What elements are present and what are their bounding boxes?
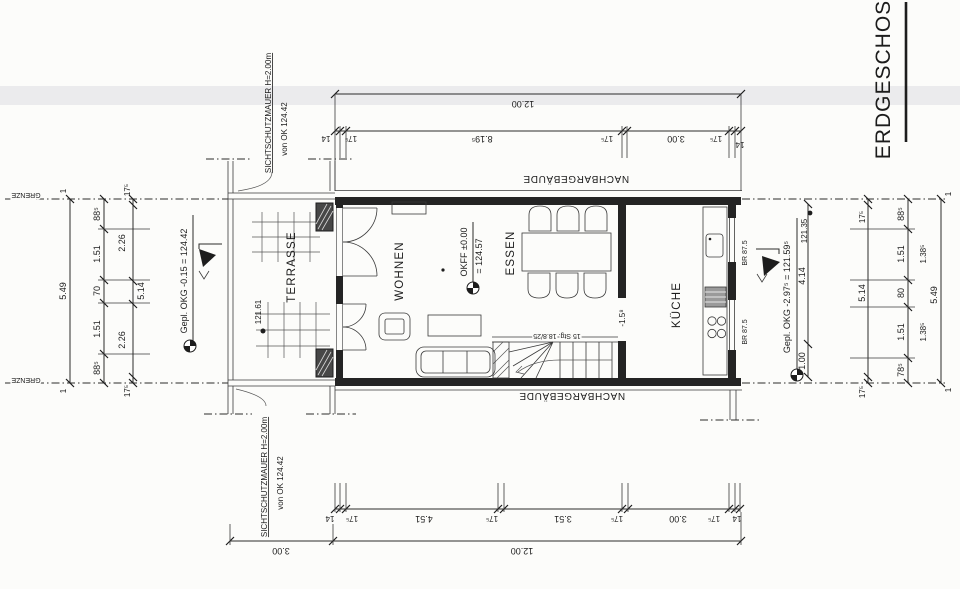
window-sill-label-b: BR 87.5 [742,319,749,344]
dim-label: 5.14 [857,284,867,302]
floorplan-drawing: ERDGESCHOSS [0,0,960,589]
dim-label: 1.00 [797,352,807,370]
dim-label: 17⁵ [345,134,357,143]
dim-label: 14 [732,514,741,523]
dim-label: 17⁵ [123,385,132,397]
dim-label: 3.00 [669,514,687,524]
dim-label: 2.26 [117,234,127,252]
spot-elevation-right: 121.35 [800,218,809,243]
terrace-level-label: Gepl. OKG -0.15 = 124.42 [179,229,189,334]
dim-label: 8.19⁵ [471,134,493,144]
dim-bottom-terrace: 3.00 [272,546,290,556]
dim-label: 17⁵ [346,514,358,523]
terrace-level-annotation: Gepl. OKG -0.15 = 124.42 [179,215,222,352]
privacy-wall-top-name: SICHTSCHUTZMAUER H=2.00m [264,53,273,174]
floor-level-marker: OKFF ±0.00 = 124.57 [441,222,484,294]
terrace-column-top [316,203,333,231]
dim-label: 17⁵ [486,514,498,523]
dim-label: 88⁵ [92,207,102,221]
dim-label: 14 [735,140,744,149]
room-label-dining: ESSEN [505,231,517,276]
dim-label: 1 [59,188,68,193]
dim-label: 88⁵ [92,361,102,375]
room-label-kitchen: KÜCHE [671,282,683,328]
dimension-left: 5.49 1 1 88⁵ 1.51 70 1.51 88⁵ 17⁵ 2.26 5… [58,184,150,397]
dim-label: 70 [92,286,102,296]
privacy-wall-label-top: SICHTSCHUTZMAUER H=2.00m von OK 124.42 [238,53,289,191]
dim-label: 2.26 [117,331,127,349]
spot-elevation-terrace: 121.61 [254,299,263,324]
dim-label: 1 [944,191,953,196]
dim-label: 17⁵ [611,514,623,523]
dimension-bottom: 14 17⁵ 4.51 17⁵ 3.51 17⁵ 3.00 17⁵ 14 3.0… [226,483,745,556]
privacy-wall-bottom-name: SICHTSCHUTZMAUER H=2.00m [260,417,269,538]
window-sill-label-a: BR 87.5 [742,240,749,265]
dim-label: 80 [896,288,906,298]
staircase: 15 Stg. 18.8/25 -1.5⁸ [509,309,627,378]
spot-dot-right [808,211,813,216]
dim-label: 1 [59,388,68,393]
dim-label: 3.51 [554,514,572,524]
dim-top-total: 12.00 [512,99,535,109]
dim-label: 17⁵ [858,386,867,398]
boundary-label-top: GRENZE [11,191,41,198]
dim-bottom-total: 12.00 [511,546,534,556]
floor-level-label: OKFF ±0.00 [459,228,469,277]
dim-label: 1 [944,387,953,392]
stair-landing-level: -1.5⁸ [618,309,627,326]
coffee-table [428,315,481,336]
dim-label: 4.14 [797,267,807,285]
dim-label: 1.38⁵ [919,323,928,342]
dim-label: 17⁵ [858,211,867,223]
terrace: TERRASSE 121.61 [204,159,356,414]
privacy-wall-label-bottom: SICHTSCHUTZMAUER H=2.00m von OK 124.42 [236,389,285,537]
direction-arrow-right [756,249,780,282]
entry-level-label: Gepl. OKG -2.97⁵ = 121.59⁵ [782,241,792,354]
dim-label: 14 [325,514,334,523]
sofa [416,347,495,377]
direction-arrow-left [199,244,222,279]
armchair [379,313,410,340]
dim-label: 1.51 [92,245,102,263]
dim-label: 1.51 [896,323,906,341]
dim-right-total: 5.49 [929,286,939,304]
neighbor-label-bottom: NACHBARGEBÄUDE [519,390,625,402]
dimension-right: 121.35 4.14 1.00 17⁵ 5.14 17⁵ 88⁵ 1.51 8… [797,191,953,398]
dishwasher-hatch [705,287,726,307]
dim-label: 5.14 [136,282,146,300]
stair-count-label: 15 Stg. 18.8/25 [533,332,581,339]
dim-label: 17⁵ [601,134,613,143]
page-title: ERDGESCHOSS [872,0,895,159]
french-doors [343,208,377,350]
dim-label: 78⁵ [896,363,906,377]
dim-label: 1.51 [896,245,906,263]
dim-label: 1.51 [92,320,102,338]
dim-label: 17⁵ [123,184,132,196]
scan-band [0,86,960,105]
dim-label: 88⁵ [896,207,906,221]
dim-label: 14 [321,134,330,143]
boundary-label-bottom: GRENZE [11,376,41,383]
terrace-column-bottom [316,349,333,377]
reference-dot [441,268,444,271]
kitchen-fittings [703,207,727,375]
dim-label: 1.38⁵ [919,245,928,264]
room-label-terrace: TERRASSE [286,231,298,303]
privacy-wall-bottom-level: von OK 124.42 [276,456,285,510]
spot-dot-terrace [261,329,266,334]
dim-label: 17⁵ [710,134,722,143]
dim-label: 17⁵ [708,514,720,523]
title-block: ERDGESCHOSS [872,0,906,159]
dim-left-total: 5.49 [58,282,68,300]
cooktop [708,317,726,338]
floorplan-canvas: ERDGESCHOSS [0,0,960,589]
privacy-wall-top-level: von OK 124.42 [280,102,289,156]
dim-label: 4.51 [415,514,433,524]
dining-set [522,206,611,298]
floor-level-abs: = 124.57 [474,238,484,273]
neighbor-label-top: NACHBARGEBÄUDE [523,173,629,185]
sink [706,234,723,257]
room-label-living: WOHNEN [394,241,406,301]
dim-label: 3.00 [667,134,685,144]
entry-level-annotation: Gepl. OKG -2.97⁵ = 121.59⁵ [756,218,803,381]
